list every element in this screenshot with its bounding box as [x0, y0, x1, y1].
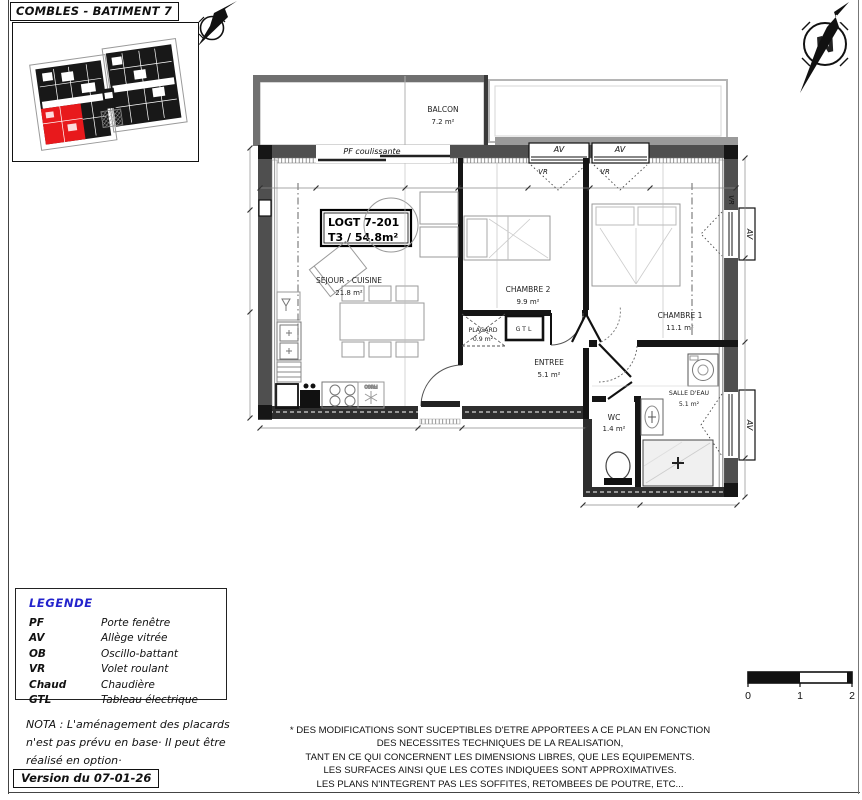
- placard-label: PLACARD: [468, 327, 497, 334]
- legend-label: Porte fenêtre: [101, 616, 170, 631]
- salle-eau-label: SALLE D'EAU: [669, 390, 709, 397]
- vr-label: VR: [600, 168, 610, 176]
- frame-left-line: [8, 0, 9, 794]
- legend-item-vr: VR Volet roulant: [29, 662, 226, 677]
- legend-label: Volet roulant: [101, 662, 168, 677]
- chambre1-label: CHAMBRE 1: [658, 311, 703, 320]
- door-swings: [551, 306, 637, 399]
- gtl-box: GTL: [506, 316, 543, 340]
- scale-tick-2: 2: [849, 690, 855, 702]
- drawing-sheet: COMBLES - BATIMENT 7: [0, 0, 862, 800]
- frigo-snowflake-icon: [365, 391, 377, 404]
- sejour-area: 21.8 m²: [335, 289, 363, 297]
- chambre1-area: 11.1 m²: [666, 324, 694, 332]
- gtl-label: GTL: [516, 326, 534, 333]
- legend-item-ob: OB Oscillo-battant: [29, 647, 226, 662]
- chambre2-label: CHAMBRE 2: [506, 285, 551, 294]
- sheet-title: COMBLES - BATIMENT 7: [10, 2, 179, 21]
- salle-eau-area: 5.1 m²: [679, 401, 700, 408]
- av-label: AV: [553, 145, 565, 154]
- balcony: BALCON 7.2 m²: [253, 75, 488, 146]
- vr-label: VR: [538, 168, 548, 176]
- legend-abbr: VR: [29, 662, 101, 677]
- toilet: [604, 452, 632, 485]
- av-label: AV: [745, 419, 754, 431]
- scale-tick-0: 0: [745, 690, 751, 702]
- wc-label: WC: [608, 413, 621, 422]
- legend-label: Allège vitrée: [101, 631, 167, 646]
- unit-type-surface: T3 / 54.8m²: [328, 231, 398, 244]
- av-label: AV: [614, 145, 626, 154]
- wc-area: 1.4 m²: [603, 425, 626, 433]
- av-label: AV: [745, 228, 754, 240]
- legend-abbr: AV: [29, 631, 101, 646]
- disclaimer-line: LES PLANS N'INTEGRENT PAS LES SOFFITES, …: [255, 778, 745, 791]
- legend-label: Oscillo-battant: [101, 647, 178, 662]
- scale-bar: 0 1 2: [744, 668, 860, 704]
- disclaimer-text: * DES MODIFICATIONS SONT SUCEPTIBLES D'E…: [255, 724, 745, 791]
- chambre2-area: 9.9 m²: [517, 298, 540, 306]
- frame-bottom-line: [8, 792, 860, 793]
- legend-abbr: GTL: [29, 693, 101, 708]
- north-arrow-icon: N: [788, 0, 862, 95]
- nota-line: n'est pas prévu en base· Il peut être: [26, 734, 256, 752]
- key-plan-highlighted-unit: [41, 103, 86, 144]
- key-plan-drawing: [13, 23, 198, 161]
- legend-label: Tableau électrique: [101, 693, 198, 708]
- scale-tick-1: 1: [797, 690, 803, 702]
- vr-label: VR: [727, 195, 735, 205]
- placard-area: 0.9 m²: [473, 336, 494, 343]
- legend-abbr: Chaud: [29, 678, 101, 693]
- legend-item-chaud: Chaud Chaudière: [29, 678, 226, 693]
- sejour-label: SEJOUR - CUISINE: [316, 276, 382, 285]
- legend-abbr: PF: [29, 616, 101, 631]
- north-arrow-small-icon: [192, 0, 244, 48]
- nota-text: NOTA : L'aménagement des placards n'est …: [26, 716, 256, 770]
- legend-abbr: OB: [29, 647, 101, 662]
- pf-coulissante-opening: PF coulissante: [316, 145, 450, 163]
- frigo-label: FRIGO: [364, 384, 378, 389]
- entree-area: 5.1 m²: [538, 371, 561, 379]
- bed-chambre2: [464, 216, 550, 260]
- key-plan-box: [12, 22, 199, 162]
- legend-heading: LEGENDE: [29, 596, 226, 610]
- legend-item-av: AV Allège vitrée: [29, 631, 226, 646]
- legend-box: LEGENDE PF Porte fenêtre AV Allège vitré…: [15, 588, 227, 700]
- version-box: Version du 07-01-26: [13, 769, 159, 788]
- legend-item-gtl: GTL Tableau électrique: [29, 693, 226, 708]
- pf-coulissante-label: PF coulissante: [343, 147, 400, 156]
- entree-label: ENTREE: [534, 358, 564, 367]
- nota-line: réalisé en option·: [26, 752, 256, 770]
- washbasin: [641, 399, 663, 435]
- window-av-top-1: AV VR: [529, 143, 589, 190]
- bed-chambre1: [592, 204, 680, 286]
- balcon-area: 7.2 m²: [432, 118, 455, 126]
- roof-outline: [489, 80, 738, 145]
- disclaimer-line: DES NECESSITES TECHNIQUES DE LA REALISAT…: [255, 737, 745, 750]
- entrance-door: [418, 365, 462, 424]
- washing-machine: [688, 354, 718, 386]
- window-av-top-2: AV VR: [592, 143, 649, 190]
- balcon-label: BALCON: [427, 105, 458, 114]
- legend-item-pf: PF Porte fenêtre: [29, 616, 226, 631]
- shower: [643, 440, 713, 486]
- floor-plan: BALCON 7.2 m² PF coulissante: [240, 60, 765, 520]
- disclaimer-line: * DES MODIFICATIONS SONT SUCEPTIBLES D'E…: [255, 724, 745, 737]
- kitchen: FRIGO: [276, 292, 384, 408]
- disclaimer-line: LES SURFACES AINSI QUE LES COTES INDIQUE…: [255, 764, 745, 777]
- disclaimer-line: TANT EN CE QUI CONCERNENT LES DIMENSIONS…: [255, 751, 745, 764]
- legend-label: Chaudière: [101, 678, 155, 693]
- nota-line: NOTA : L'aménagement des placards: [26, 716, 256, 734]
